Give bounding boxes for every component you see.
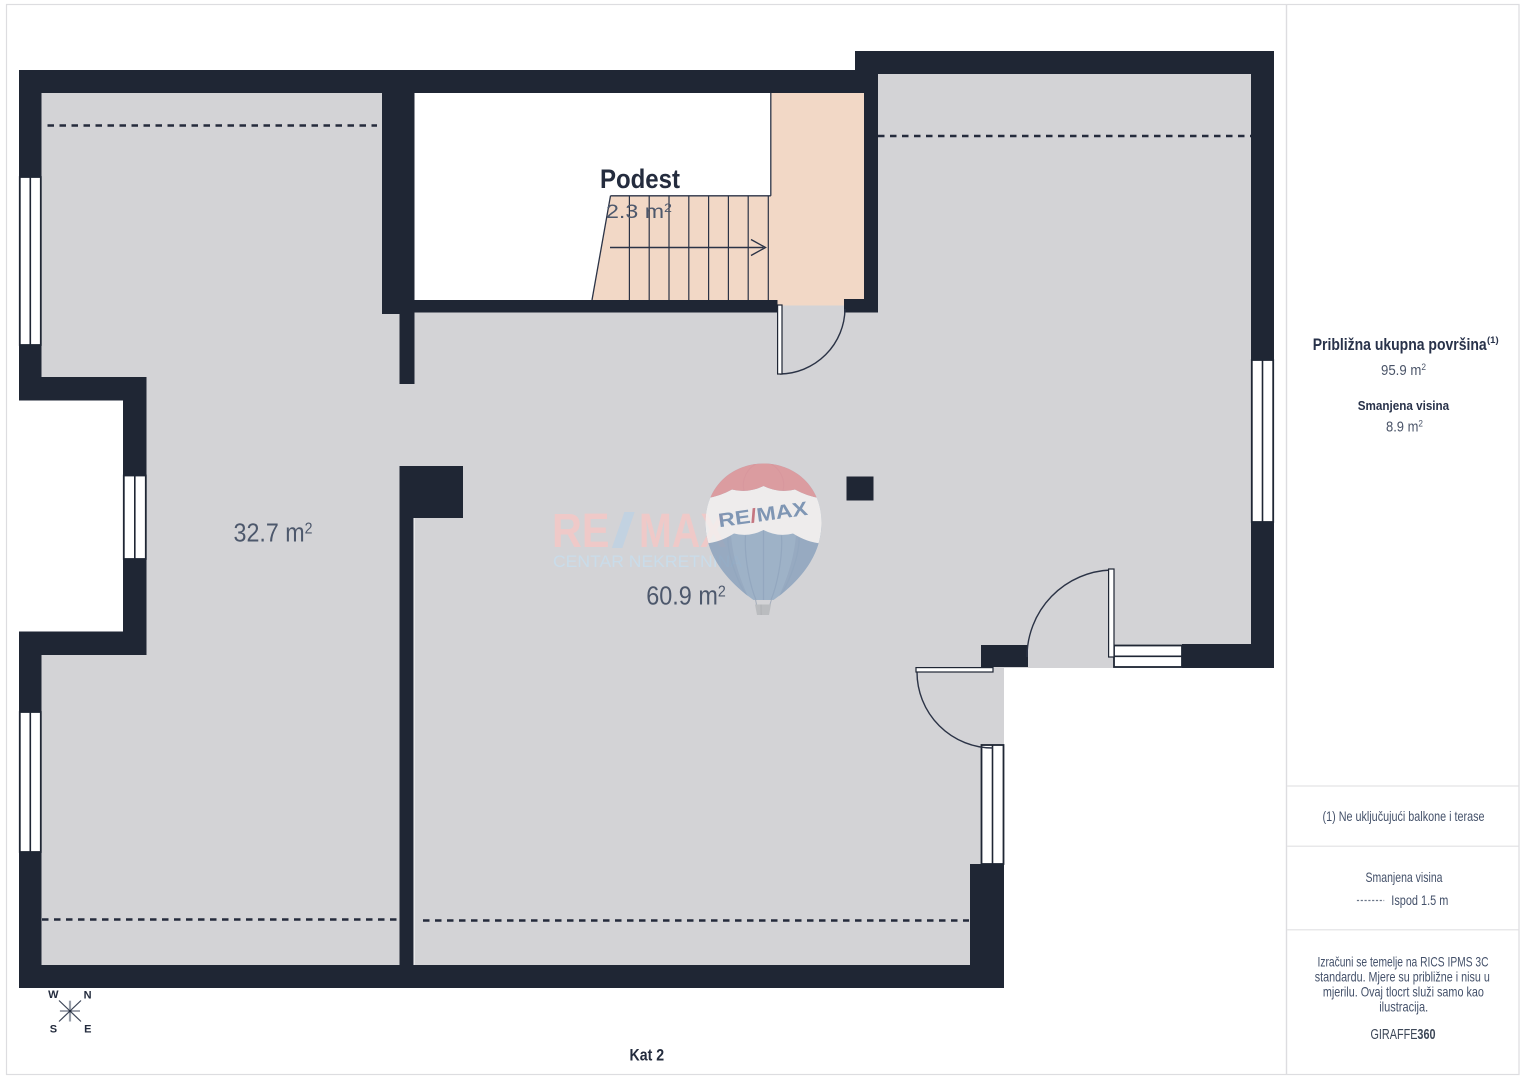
svg-text:W: W	[48, 989, 59, 1001]
svg-text:Približna ukupna površina: Približna ukupna površina	[1313, 336, 1488, 354]
svg-text:N: N	[84, 990, 92, 1002]
svg-text:Kat 2: Kat 2	[630, 1046, 665, 1065]
svg-text:2.3 m2: 2.3 m2	[606, 201, 672, 223]
svg-text:(1) Ne uključujući balkone i t: (1) Ne uključujući balkone i terase	[1323, 808, 1485, 824]
svg-text:mjerilu. Ovaj tlocrt služi sam: mjerilu. Ovaj tlocrt služi samo kao	[1323, 984, 1484, 1000]
svg-text:RE: RE	[552, 505, 610, 558]
svg-text:Smanjena visina: Smanjena visina	[1366, 869, 1443, 885]
svg-text:95.9 m2: 95.9 m2	[1381, 362, 1426, 379]
svg-text:standardu. Mjere su približne: standardu. Mjere su približne i nisu u	[1315, 969, 1490, 985]
svg-text:Izračuni se temelje na RICS IP: Izračuni se temelje na RICS IPMS 3C	[1318, 954, 1489, 970]
svg-text:Smanjena visina: Smanjena visina	[1358, 398, 1450, 413]
svg-text:E: E	[84, 1024, 91, 1036]
svg-text:ilustracija.: ilustracija.	[1379, 999, 1428, 1015]
svg-text:(1): (1)	[1487, 335, 1499, 346]
svg-text:/: /	[611, 505, 636, 558]
svg-text:GIRAFFE360: GIRAFFE360	[1371, 1027, 1436, 1043]
svg-text:60.9 m2: 60.9 m2	[646, 583, 726, 611]
svg-text:S: S	[50, 1024, 57, 1036]
svg-text:Podest: Podest	[600, 164, 680, 194]
svg-text:8.9 m2: 8.9 m2	[1386, 419, 1423, 436]
svg-text:32.7 m2: 32.7 m2	[234, 520, 313, 548]
svg-text:Ispod 1.5 m: Ispod 1.5 m	[1391, 892, 1448, 908]
